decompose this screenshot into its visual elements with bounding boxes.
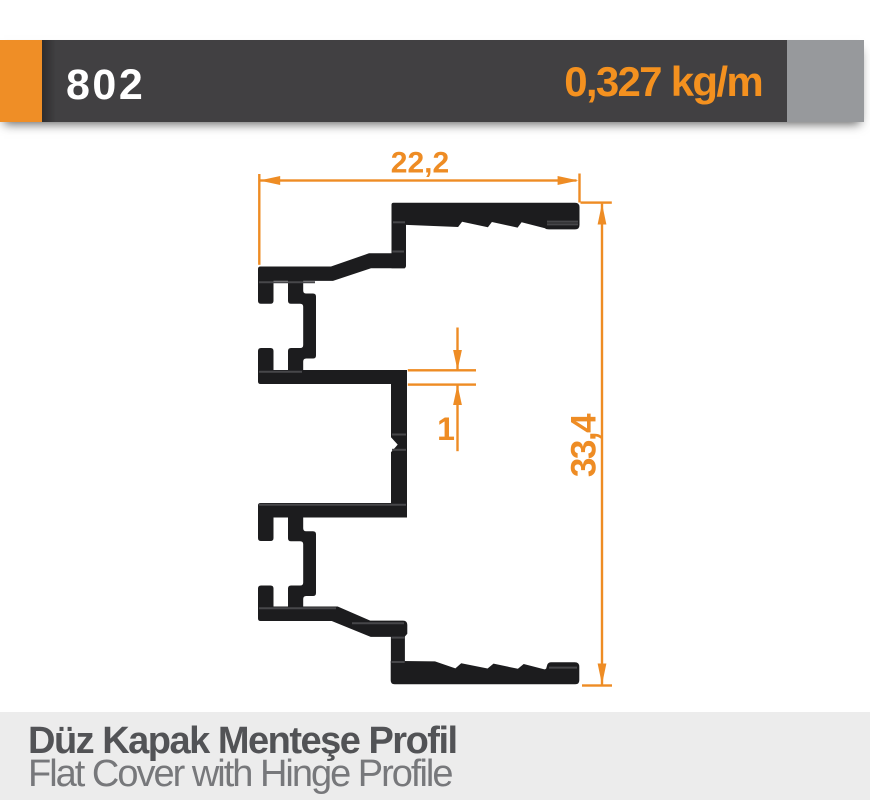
svg-text:22,2: 22,2 bbox=[391, 147, 449, 180]
svg-text:1: 1 bbox=[437, 411, 455, 447]
svg-text:33,4: 33,4 bbox=[565, 413, 604, 477]
